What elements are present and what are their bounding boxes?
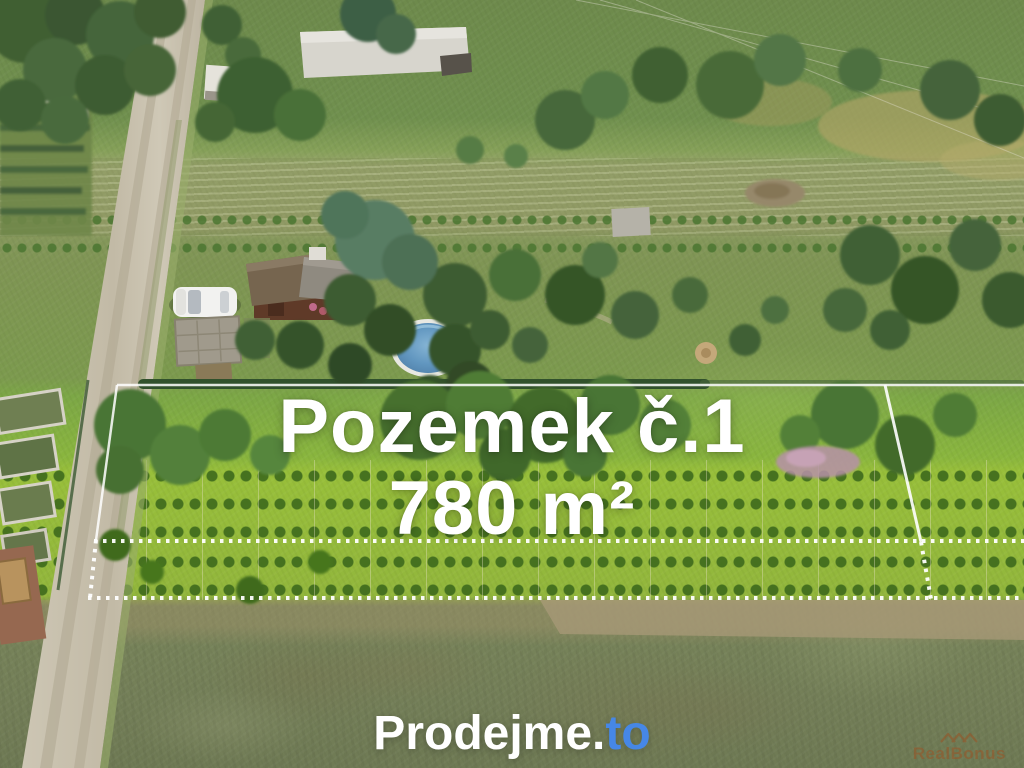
logo-prefix: Prodejme.: [373, 707, 605, 760]
logo-suffix: to: [605, 707, 650, 760]
triple-roof-icon: [937, 729, 981, 744]
aerial-photo-banner: Pozemek č.1 780 m² Prodejme.to RealBonus: [0, 0, 1024, 768]
plot-title: Pozemek č.1: [0, 386, 1024, 468]
plot-caption: Pozemek č.1 780 m²: [0, 386, 1024, 550]
watermark: RealBonus: [913, 729, 1006, 764]
boundary-right-dotted: [921, 542, 931, 599]
watermark-text: RealBonus: [913, 744, 1006, 763]
brand-logo: Prodejme.to: [0, 706, 1024, 761]
plot-area: 780 m²: [0, 468, 1024, 550]
